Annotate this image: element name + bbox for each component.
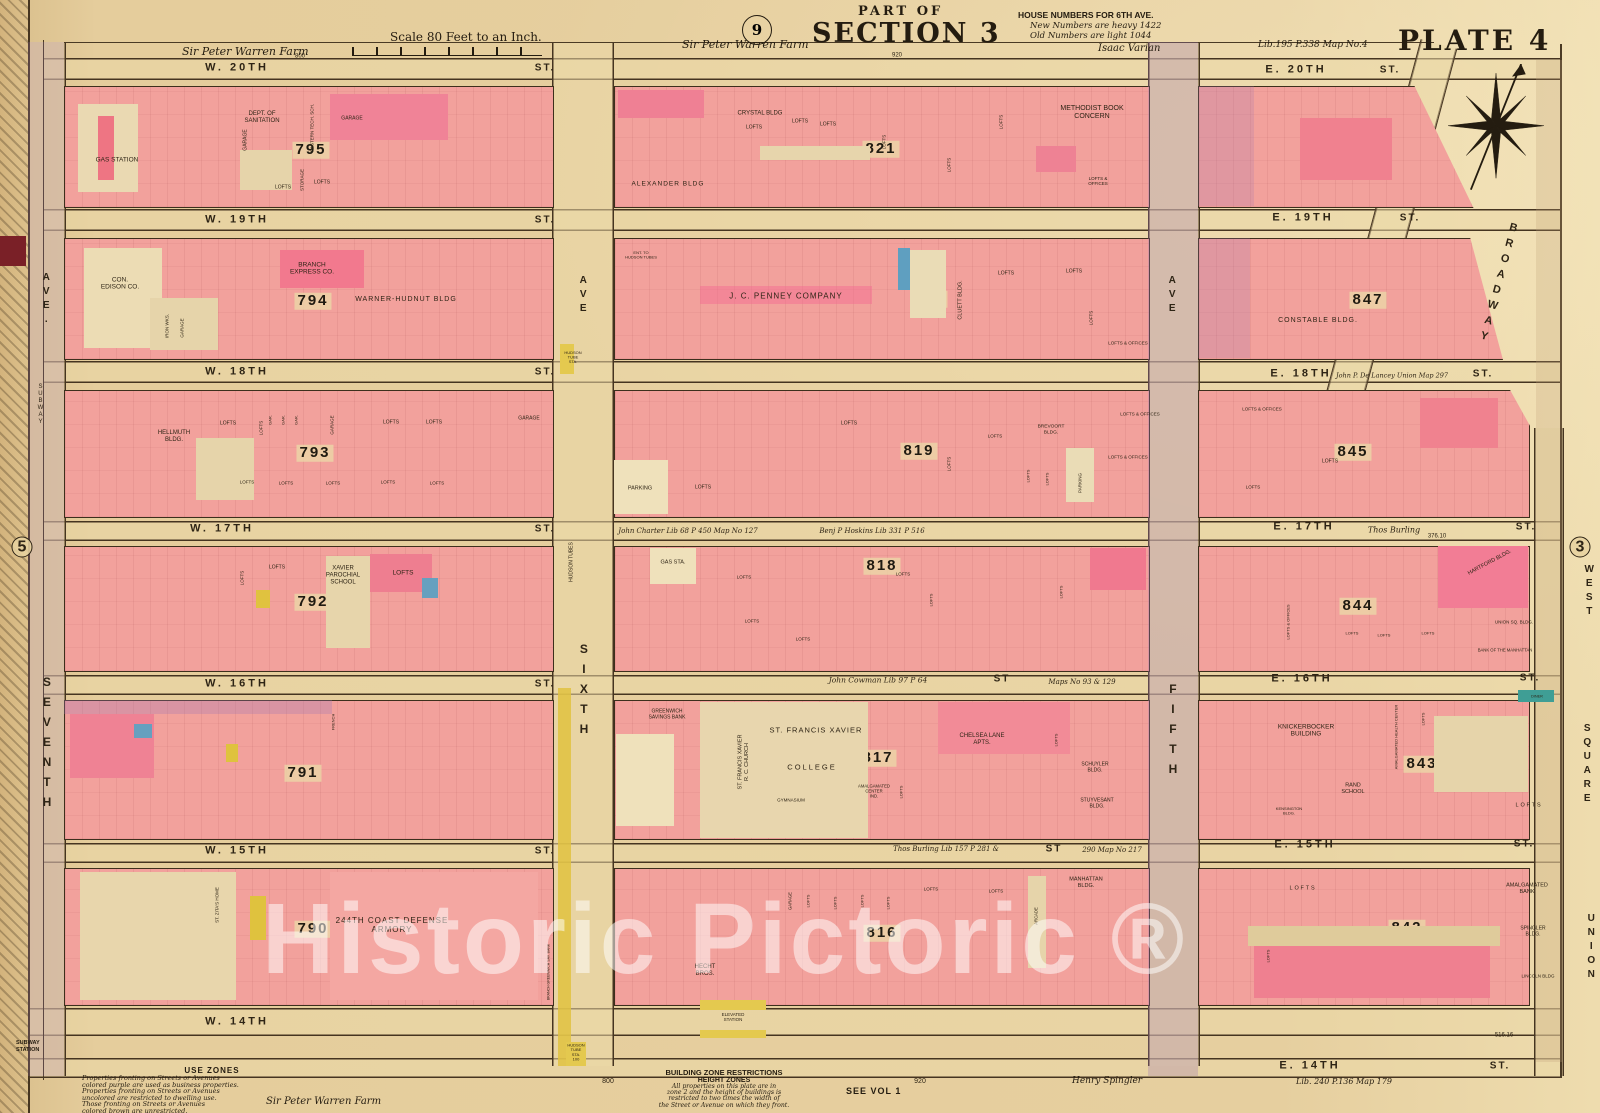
block-number: 819 (900, 443, 937, 460)
map-label: LOFTS & OFFICES (1287, 604, 1292, 639)
map-patch (1198, 86, 1254, 206)
map-label: DINER (1531, 695, 1543, 699)
map-label: John Cowman Lib 97 P 64 (829, 677, 928, 686)
map-label: GAR. (269, 415, 274, 425)
map-label: GARAGE (518, 416, 539, 422)
map-label: LOFTS (999, 115, 1004, 130)
street-label-e17: E. 17TH (1273, 521, 1334, 534)
map-patch (1036, 146, 1076, 172)
map-label: LOFTS (841, 421, 857, 427)
plate-ref-circle: 5 (12, 537, 33, 558)
map-label: AVE. (40, 272, 52, 328)
map-label: GARAGE (341, 116, 362, 122)
street-label-w20: W. 20TH (205, 62, 269, 75)
avenue-label-union-sq-west: WEST (1583, 564, 1595, 620)
map-label: GARAGE (180, 318, 185, 337)
map-patch (196, 438, 254, 500)
map-label: ALEXANDER BLDG (632, 180, 705, 187)
atlas-map-sheet: PART OF SECTION 3 9 Sir Peter Warren Far… (0, 0, 1600, 1113)
map-label: John Charter Lib 68 P 450 Map No 127 (618, 527, 757, 535)
map-patch (422, 578, 438, 598)
block-number: 793 (296, 445, 333, 462)
plate-ref-circle: 3 (1570, 537, 1591, 558)
map-label: LOFTS (1055, 734, 1060, 747)
map-label: BREVOORT BLDG. (1038, 424, 1065, 435)
house-numbers-line1: New Numbers are heavy 1422 (1030, 21, 1161, 31)
map-label: PARKING (628, 486, 652, 492)
map-label: LOFTS (1516, 803, 1543, 809)
map-label: LOFTS (381, 480, 396, 485)
map-label: ST. (535, 62, 555, 74)
map-label: AMALGAMATED CENTER IND. (858, 785, 890, 799)
map-label: SQUARE (1581, 723, 1593, 807)
street-band (44, 58, 1560, 80)
map-patch (1438, 546, 1528, 608)
map-label: LOFTS (930, 594, 935, 607)
map-patch (28, 42, 64, 1076)
map-label: LOFTS (988, 434, 1003, 439)
street-label-e15: E. 15TH (1274, 839, 1335, 852)
map-label: LOFTS (900, 786, 905, 799)
map-label: LOFTS (220, 421, 236, 427)
street-label-w16: W. 16TH (205, 678, 269, 691)
map-label: LOFTS (240, 480, 255, 485)
farm-note-top-left: Sir Peter Warren Farm (182, 45, 309, 58)
block-number: 847 (1349, 292, 1386, 309)
map-label: GAS STA. (661, 560, 686, 566)
map-label: LOFTS (1422, 713, 1427, 726)
street-label-w17: W. 17TH (190, 523, 254, 536)
map-label: Thos Burling (1368, 525, 1420, 534)
map-patch (256, 590, 270, 608)
scale-bar (352, 47, 542, 56)
map-patch (0, 236, 26, 266)
map-patch (1300, 118, 1392, 180)
map-label: LOFTS & OFFICES (1108, 455, 1148, 460)
map-label: ST. (1490, 1060, 1510, 1072)
map-label: SUBWAY (37, 384, 44, 426)
map-label: 516.16 (1495, 1033, 1513, 1040)
map-label: SCHUYLER BLDG. (1081, 762, 1108, 773)
street-label-e20: E. 20TH (1265, 64, 1326, 77)
map-label: CRYSTAL BLDG (738, 111, 783, 118)
map-label: LOFTS (792, 119, 808, 125)
scale-label: Scale 80 Feet to an Inch. (390, 30, 542, 44)
map-label: LOFTS (1027, 470, 1032, 483)
title-part-of: PART OF (858, 4, 943, 19)
map-label: AMALGAMATED BANK (1506, 883, 1548, 896)
map-label: GAR. (295, 415, 300, 425)
map-patch (700, 1030, 766, 1038)
map-label: LOFTS (426, 420, 442, 426)
map-label: GAS STATION (96, 156, 139, 163)
see-vol-note: SEE VOL 1 (846, 1086, 901, 1096)
map-label: PARKING (1078, 473, 1083, 493)
block-number: 845 (1334, 444, 1371, 461)
map-label: UNION (1585, 913, 1597, 983)
farm-note-top-center: Sir Peter Warren Farm (682, 38, 809, 51)
map-label: LOFTS (326, 481, 341, 486)
map-label: LOFTS (314, 180, 330, 186)
map-label: LOFTS (279, 481, 294, 486)
map-label: LOFTS (947, 457, 952, 472)
map-label: STORAGE (300, 169, 305, 191)
map-label: AVE (1166, 275, 1178, 317)
map-label: LOFTS (259, 421, 264, 436)
map-patch (910, 250, 946, 318)
map-label: BRANCH EXPRESS CO. (290, 262, 334, 277)
map-label: ST. (535, 845, 555, 857)
title-section: SECTION 3 (812, 18, 1001, 49)
map-label: CHELSEA LANE APTS. (959, 733, 1004, 747)
map-patch (1248, 926, 1500, 946)
map-label: CLUETT BLDG. (958, 280, 964, 319)
map-label: HELLMUTH BLDG. (158, 430, 190, 444)
map-label: ST. (1400, 212, 1420, 224)
map-label: ST. FRANCIS XAVIER (770, 727, 863, 736)
map-label: CON. EDISON CO. (101, 277, 139, 292)
map-label: HUDSON TUBES (569, 542, 575, 582)
map-label: ENT. TO HUDSON TUBES (625, 251, 657, 260)
map-label: 800 (602, 1078, 614, 1086)
map-label: LOFTS (1089, 311, 1094, 326)
map-label: LOFTS (1046, 473, 1051, 486)
map-patch (760, 146, 870, 160)
map-label: 920 (892, 53, 902, 60)
map-label: LOFTS & OFFICES (1108, 341, 1148, 346)
map-label: LOFTS (1422, 632, 1435, 637)
map-label: 290 Map No 217 (1082, 846, 1142, 854)
map-label: HUDSON TUBE STA. (564, 351, 581, 365)
map-label: RAND SCHOOL (1341, 783, 1364, 796)
map-label: FRENCH (332, 714, 337, 731)
map-label: ST. (535, 214, 555, 226)
map-label: GYMNASIUM (777, 798, 805, 803)
plate-number: PLATE 4 (1398, 24, 1551, 57)
block-number: 844 (1339, 598, 1376, 615)
map-patch (1536, 60, 1562, 1062)
street-label-e16: E. 16TH (1271, 673, 1332, 686)
use-zones-legend: USE ZONES Properties fronting on Streets… (82, 1066, 342, 1113)
map-label: LOFTS (1066, 269, 1082, 275)
map-label: WARNER-HUDNUT BLDG (355, 296, 457, 304)
map-label: LOFTS & OFFICES (1120, 412, 1160, 417)
height-zones-heading1: BUILDING ZONE RESTRICTIONS (624, 1068, 824, 1077)
map-label: J. C. PENNEY COMPANY (729, 291, 843, 300)
map-label: John P. De Lancey Union Map 297 (1336, 372, 1448, 379)
map-patch (80, 872, 236, 1000)
legend-line: colored brown are unrestricted. (82, 1108, 342, 1113)
map-label: ST. FRANCIS XAVIER R. C. CHURCH (738, 735, 751, 790)
compass-rose (1438, 64, 1554, 192)
block-number: 794 (294, 293, 331, 310)
street-label-e19: E. 19TH (1272, 212, 1333, 225)
avenue-label-sixth: SIXTH (576, 642, 590, 742)
map-patch (64, 700, 332, 714)
map-label: ST. (1473, 368, 1493, 380)
map-label: LOFTS & OFFICES (1088, 177, 1108, 187)
map-label: LOFTS (1322, 459, 1338, 465)
map-label: ST. (1514, 838, 1534, 850)
map-label: CONSTABLE BLDG. (1278, 317, 1358, 325)
map-label: ST. (535, 366, 555, 378)
map-label: ST. (535, 523, 555, 535)
map-patch (226, 744, 238, 762)
use-zones-text: Properties fronting on Streets or Avenue… (82, 1075, 342, 1113)
map-label: LOFTS (896, 572, 911, 577)
house-numbers-line2: Old Numbers are light 1044 (1030, 31, 1151, 41)
map-label: ST. (1516, 521, 1536, 533)
house-numbers-heading: HOUSE NUMBERS FOR 6TH AVE. (1018, 10, 1154, 20)
map-label: SPINGLER BLDG. (1520, 926, 1545, 937)
map-patch (618, 90, 704, 118)
map-patch (1434, 716, 1528, 792)
street-label-w18: W. 18TH (205, 366, 269, 379)
map-label: ST. (1520, 672, 1540, 684)
map-label: ST. ZITA'S HOME (215, 887, 220, 923)
map-label: GARAGE (330, 415, 335, 434)
map-label: LOFTS (820, 122, 836, 128)
map-label: Thos Burling Lib 157 P 281 & (893, 845, 999, 853)
city-block-792: 792 (64, 546, 554, 672)
map-patch (98, 116, 114, 180)
avenue-label-fifth: FIFTH (1165, 682, 1179, 782)
street-label-w19: W. 19TH (205, 214, 269, 227)
map-label: LOFTS (240, 571, 245, 586)
map-patch (240, 150, 292, 190)
map-label: LOFTS (737, 575, 752, 580)
height-zones-legend: BUILDING ZONE RESTRICTIONS HEIGHT ZONES … (624, 1068, 824, 1109)
legend-line: the Street or Avenue on which they front… (624, 1103, 824, 1109)
street-label-e14: E. 14TH (1279, 1060, 1340, 1073)
map-label: LOFTS (1346, 632, 1359, 637)
map-label: 376.10 (1428, 534, 1446, 541)
map-label: IRON WKS. (165, 314, 170, 338)
map-label: ST (1046, 843, 1063, 855)
map-label: LOFTS (882, 135, 887, 150)
subway-station-label: SUBWAY STATION (16, 1040, 40, 1053)
liber-reference: Lib.195 P.338 Map No.4 (1258, 40, 1368, 50)
map-label: ST (994, 673, 1011, 685)
map-label: 920 (914, 1078, 926, 1086)
map-patch (1198, 238, 1250, 358)
map-patch (134, 724, 152, 738)
map-label: LOFTS (746, 125, 762, 131)
map-label: GAR. (282, 415, 287, 425)
map-label: BANK OF THE MANHATTAN (1478, 649, 1533, 654)
avenue-label-seventh: SEVENTH (39, 675, 53, 815)
map-label: ELEVATED STATION (722, 1013, 745, 1023)
map-label: LOFTS (393, 569, 414, 576)
map-label: DEPT. OF SANITATION (244, 111, 279, 125)
map-label: LOFTS (269, 565, 285, 571)
map-label: LOFTS (1267, 950, 1272, 963)
surveyor-name: Isaac Varian (1098, 43, 1160, 54)
map-patch (898, 248, 910, 290)
map-label: LINCOLN BLDG (1521, 974, 1554, 979)
map-label: LOFTS (796, 637, 811, 642)
map-label: LOFTS (275, 185, 291, 191)
map-label: GARAGE (243, 129, 249, 150)
map-label: LOFTS (1060, 586, 1065, 599)
street-label-w14: W. 14TH (205, 1016, 269, 1029)
street-label-w15: W. 15TH (205, 845, 269, 858)
map-label: METHODIST BOOK CONCERN (1060, 105, 1123, 121)
map-label: GREENWICH SAVINGS BANK (649, 709, 686, 720)
map-label: LOFTS (745, 619, 760, 624)
map-label: LOFTS (1246, 485, 1261, 490)
liber-14th: Lib. 240 P.136 Map 179 (1296, 1077, 1392, 1086)
map-patch (1254, 946, 1490, 998)
map-label: LOFTS (383, 420, 399, 426)
city-block-820: 820 (614, 238, 1150, 360)
map-label: LOFTS (695, 485, 711, 491)
map-label: ST. (535, 678, 555, 690)
map-label: KNICKERBOCKER BUILDING (1278, 724, 1334, 739)
map-label: XAVIER PAROCHIAL SCHOOL (326, 566, 360, 587)
map-label: AMALGAMATED HEALTH CENTER (1395, 705, 1400, 770)
map-patch (700, 1000, 766, 1010)
map-patch (1090, 548, 1146, 590)
map-label: ST. (1380, 64, 1400, 76)
surveyor-14th: Henry Spingler (1072, 1076, 1142, 1086)
map-label: LOFTS (998, 271, 1014, 277)
map-label: LOFTS (947, 158, 952, 173)
map-label: EASTERN TECH. SCH. (310, 104, 315, 152)
map-label: LOFTS (1290, 886, 1317, 892)
watermark: Historic Pictoric ® (262, 882, 1187, 997)
map-label: KENSINGTON BLDG. (1276, 807, 1302, 816)
map-label: LOFTS (1378, 634, 1391, 639)
map-label: STUYVESANT BLDG. (1080, 798, 1113, 809)
map-label: Maps No 93 & 129 (1048, 678, 1115, 686)
city-block-793: 793 (64, 390, 554, 518)
map-label: Benj P Hoskins Lib 331 P 516 (819, 527, 924, 535)
street-label-e18: E. 18TH (1270, 368, 1331, 381)
map-patch (616, 734, 674, 826)
map-patch (700, 702, 868, 838)
map-label: COLLEGE (787, 764, 836, 773)
map-label: LOFTS & OFFICES (1242, 407, 1282, 412)
map-label: HUDSON TUBE STA. 100 (567, 1044, 584, 1062)
map-patch (1420, 398, 1498, 448)
block-number: 791 (284, 765, 321, 782)
map-label: LOFTS (430, 481, 445, 486)
map-label: UNION SQ. BLDG. (1495, 620, 1533, 625)
map-label: AVE (577, 275, 589, 317)
height-zones-text: All properties on this plate are in zone… (624, 1084, 824, 1109)
